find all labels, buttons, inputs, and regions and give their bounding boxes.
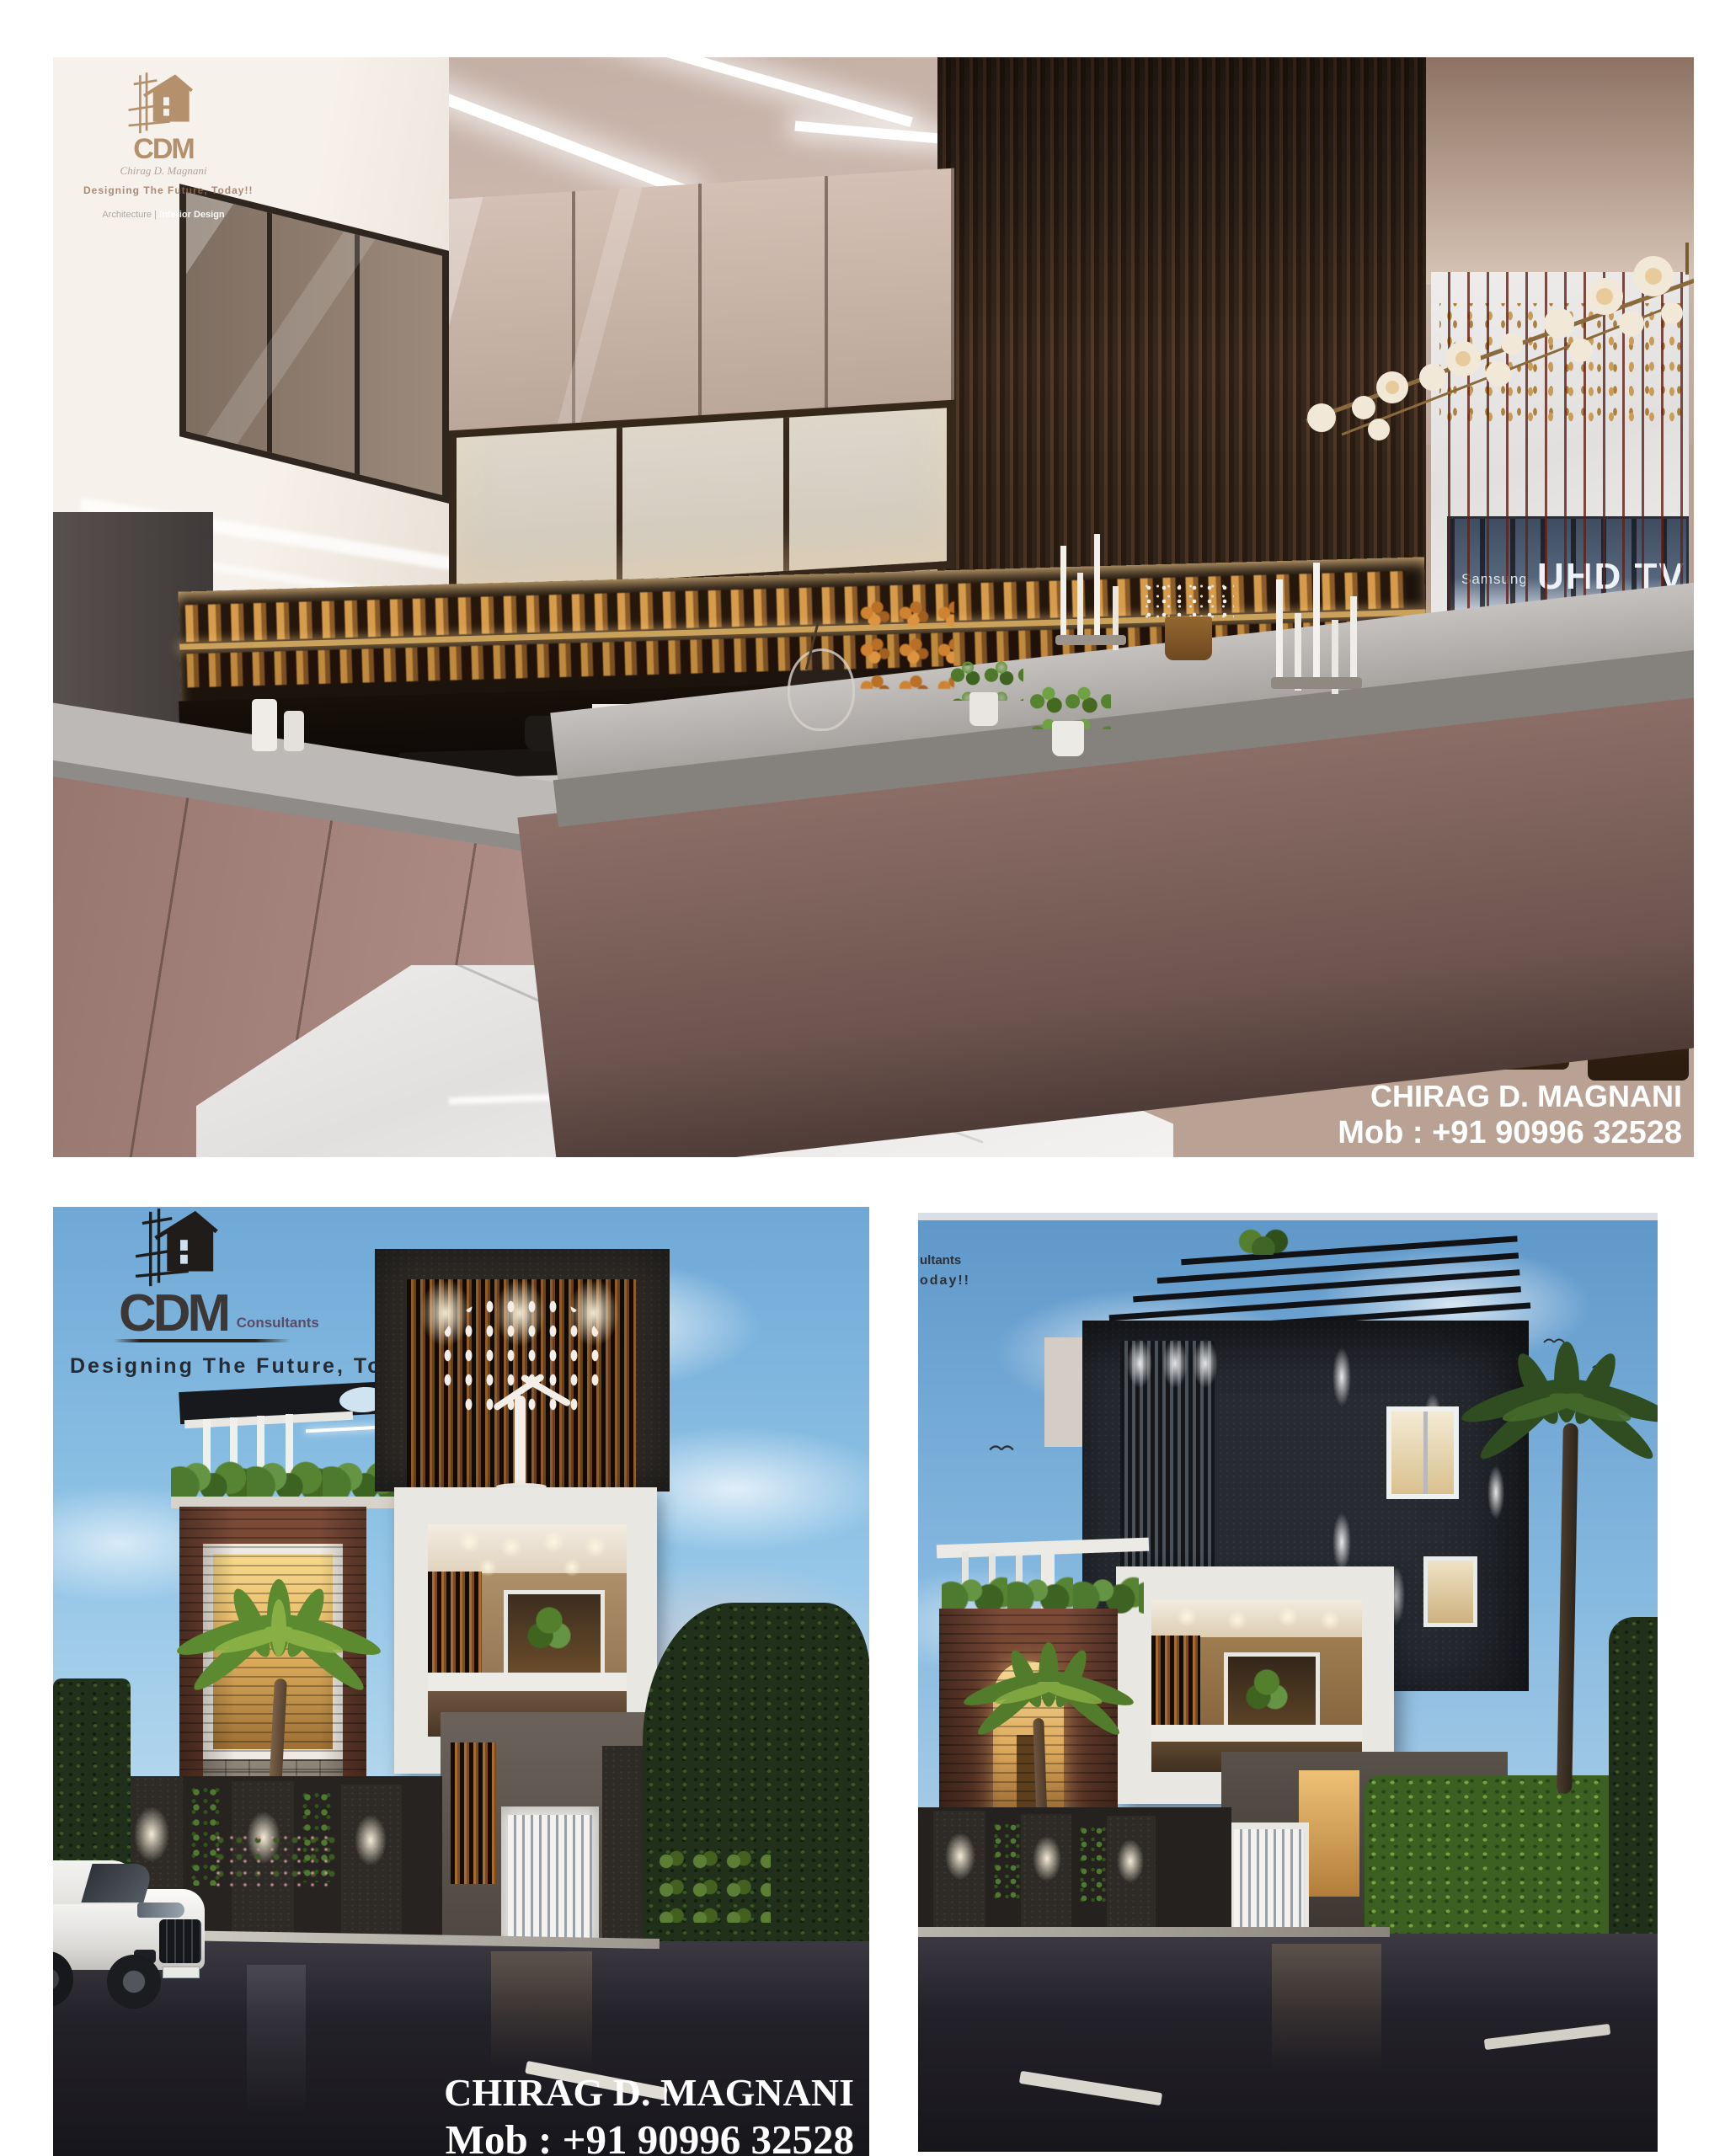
caption-phone: Mob : +91 90996 32528 xyxy=(444,2116,854,2156)
interior-spotlight xyxy=(563,1558,581,1577)
cdm-signature-text: Chirag D. Magnani xyxy=(83,164,243,178)
white-car xyxy=(53,1855,213,2015)
orange-plant xyxy=(853,596,954,689)
tree-mural xyxy=(430,1294,612,1488)
gate-slats xyxy=(1234,1829,1303,1927)
slat-downlight xyxy=(1162,1339,1188,1388)
white-gate xyxy=(501,1806,599,1948)
top-light-strip xyxy=(918,1213,1658,1220)
candle xyxy=(1060,546,1066,637)
cdm-subline-left: Architecture | xyxy=(102,210,157,220)
car-plate xyxy=(163,1967,200,1978)
car-windshield xyxy=(81,1864,154,1903)
plant-pot-white xyxy=(969,692,998,726)
wall-sconce-glow xyxy=(945,1833,975,1880)
road-reflection-warm xyxy=(491,1951,592,2069)
caption-name: CHIRAG D. MAGNANI xyxy=(1338,1079,1682,1114)
cdm-brand-text: CDM xyxy=(119,1284,227,1342)
interior-spotlight xyxy=(1320,1610,1340,1630)
plant-pot-white xyxy=(1052,721,1084,756)
road-reflection-cool xyxy=(247,1965,306,2116)
candle-stand xyxy=(1271,677,1362,689)
candle-stand xyxy=(1055,635,1126,645)
kitchen-caption: CHIRAG D. MAGNANI Mob : +91 90996 32528 xyxy=(1338,1079,1682,1152)
bird-icon xyxy=(989,1442,1014,1452)
wall-light xyxy=(1332,1347,1351,1406)
frosted-glass-cabinets xyxy=(449,400,954,600)
cdm-subline: Architecture | Interior Design xyxy=(83,210,243,220)
balcony-slab xyxy=(428,1673,627,1691)
cdm-tagline-text: Designing The Future, Today!! xyxy=(83,184,243,196)
candle xyxy=(1350,596,1357,689)
potted-plant-green xyxy=(1027,682,1111,755)
gate-slats xyxy=(508,1815,592,1940)
frame-opening xyxy=(1151,1600,1362,1772)
counter-canister xyxy=(252,699,277,751)
caption-name: CHIRAG D. MAGNANI xyxy=(444,2070,854,2116)
cabinet-gloss xyxy=(449,168,954,435)
counter-canister xyxy=(284,711,304,751)
cdm-logo-kitchen: CDM Chirag D. Magnani Designing The Futu… xyxy=(83,71,243,220)
wall-sconce-glow xyxy=(355,1815,387,1865)
logo-fragment-line2: oday!! xyxy=(920,1271,970,1291)
car-wheel xyxy=(107,1955,161,2009)
white-flower-pot xyxy=(1141,581,1234,662)
flower-bed xyxy=(211,1832,338,1887)
glass-vase xyxy=(788,648,855,731)
palm-fronds-right xyxy=(1440,1331,1658,1491)
frosted-inner-glow xyxy=(457,408,947,591)
interior-spotlight xyxy=(1278,1607,1298,1627)
logo-fragment-line1: ultants xyxy=(920,1251,970,1271)
globe-chandelier xyxy=(1291,243,1694,453)
compound-wall xyxy=(918,1807,1231,1942)
balcony-plant xyxy=(527,1605,571,1656)
kitchen-render-panel: Samsung UHD TV Ultra High Definition 4K xyxy=(53,57,1694,1157)
interior-spotlight xyxy=(542,1531,564,1553)
frame-opening xyxy=(428,1524,627,1737)
right-hedge xyxy=(1365,1775,1642,1940)
cdm-tagline-text: Designing The Future, Today!! xyxy=(70,1354,424,1379)
road-reflection-warm xyxy=(1272,1944,1381,2070)
wall-light xyxy=(1332,1513,1351,1572)
interior-spotlight xyxy=(1177,1607,1197,1627)
far-right-foliage xyxy=(1609,1617,1658,1937)
cdm-suffix-text: Consultants xyxy=(237,1315,319,1331)
wall-sconce-glow xyxy=(1033,1836,1061,1881)
entry-door-slats xyxy=(451,1742,496,1884)
exterior-left-caption: CHIRAG D. MAGNANI Mob : +91 90996 32528 xyxy=(444,2070,854,2156)
car-headlight xyxy=(137,1903,184,1918)
back-upper-cabinets xyxy=(449,168,954,435)
candle xyxy=(1094,534,1100,635)
poster-canvas: { "canvas": {"bg": "#ffffff"}, "kitchen"… xyxy=(0,0,1725,2156)
interior-spotlight xyxy=(1227,1610,1247,1630)
slat-downlight xyxy=(1127,1339,1152,1388)
rooftop-palmlet xyxy=(1238,1221,1289,1255)
caption-phone: Mob : +91 90996 32528 xyxy=(1338,1114,1682,1152)
candle xyxy=(1276,579,1283,679)
white-gate xyxy=(1228,1822,1309,1934)
right-bush-glow xyxy=(653,1847,771,1923)
car-grille xyxy=(159,1919,201,1963)
wall-sconce-glow xyxy=(1117,1839,1144,1883)
mural-trunk xyxy=(515,1396,526,1488)
potted-plant-green xyxy=(948,657,1023,723)
palm-fronds xyxy=(943,1634,1154,1760)
wooden-pot xyxy=(1165,616,1212,660)
cdm-house-icon xyxy=(125,71,202,136)
balcony-plant xyxy=(1246,1668,1288,1716)
interior-spotlight xyxy=(458,1531,480,1553)
logo-fragment-text: ultants oday!! xyxy=(920,1251,970,1291)
wall-plant xyxy=(1076,1824,1107,1905)
exterior-right-render-panel: ultants oday!! xyxy=(918,1213,1658,2152)
wall-plant xyxy=(991,1821,1023,1905)
exterior-left-render-panel: CDM Consultants Designing The Future, To… xyxy=(53,1207,869,2156)
cdm-brand-text: CDM xyxy=(83,136,243,163)
pergola-rail xyxy=(1133,1269,1519,1302)
slat-downlight xyxy=(1193,1339,1218,1388)
canopy-led-line xyxy=(306,1426,382,1433)
mid-window xyxy=(1423,1556,1477,1627)
wall-sconce-glow xyxy=(134,1806,169,1862)
interior-spotlight xyxy=(585,1536,606,1558)
balcony-slab xyxy=(1151,1725,1362,1742)
interior-spotlight xyxy=(500,1536,522,1558)
cdm-house-icon xyxy=(131,1207,230,1289)
curb-line xyxy=(918,1927,1390,1937)
palm-fronds xyxy=(152,1569,405,1721)
window-mullion xyxy=(1423,1412,1428,1494)
cdm-subline-right: Interior Design xyxy=(159,210,225,220)
cdm-logo-exterior: CDM Consultants Designing The Future, To… xyxy=(70,1207,424,1379)
candle xyxy=(1313,563,1320,680)
